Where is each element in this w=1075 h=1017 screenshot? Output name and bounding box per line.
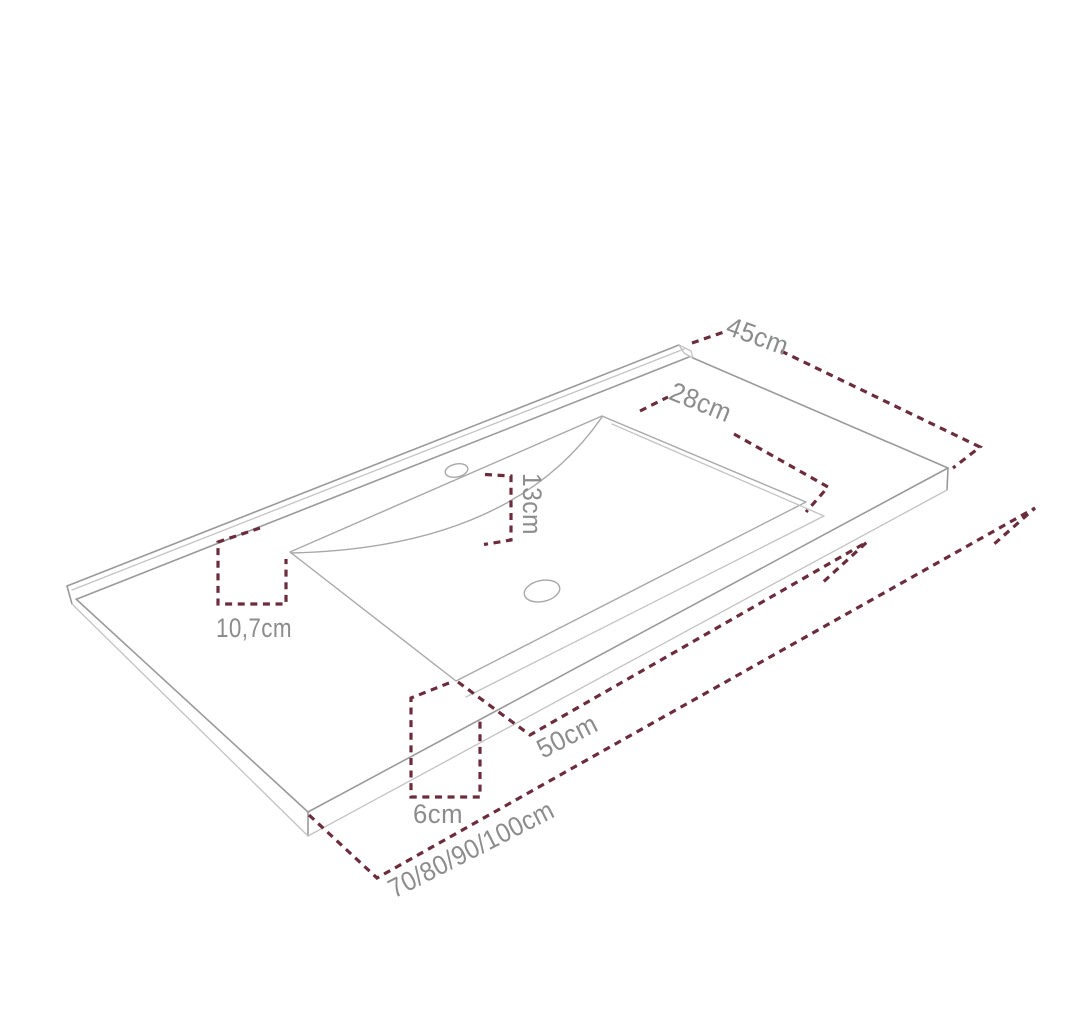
dimension-label-13cm: 13cm: [517, 473, 547, 535]
washbasin-dimension-diagram: 45cm 28cm 13cm 10,7cm 50cm 6cm 70/80/90/…: [0, 0, 1075, 1017]
dimension-label-10-7cm: 10,7cm: [216, 613, 292, 643]
dimension-label-6cm: 6cm: [413, 799, 463, 829]
slab-right-corner-edge: [947, 468, 948, 490]
